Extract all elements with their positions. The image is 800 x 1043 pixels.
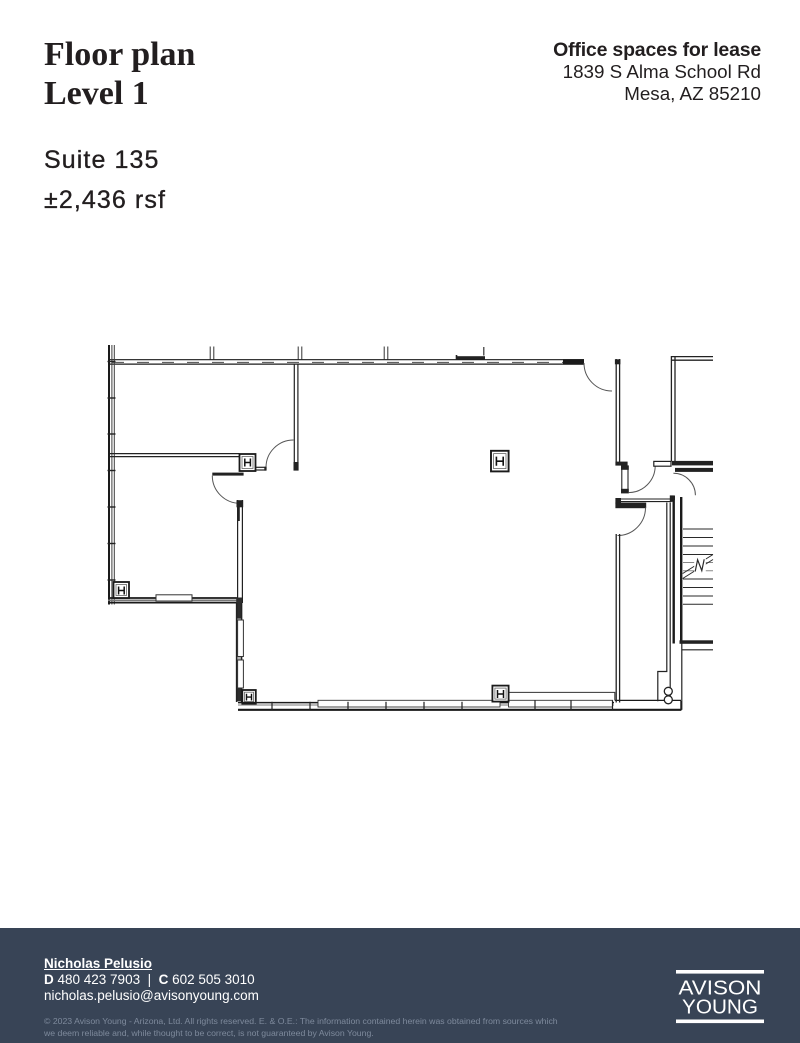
svg-text:YOUNG: YOUNG	[682, 996, 758, 1019]
